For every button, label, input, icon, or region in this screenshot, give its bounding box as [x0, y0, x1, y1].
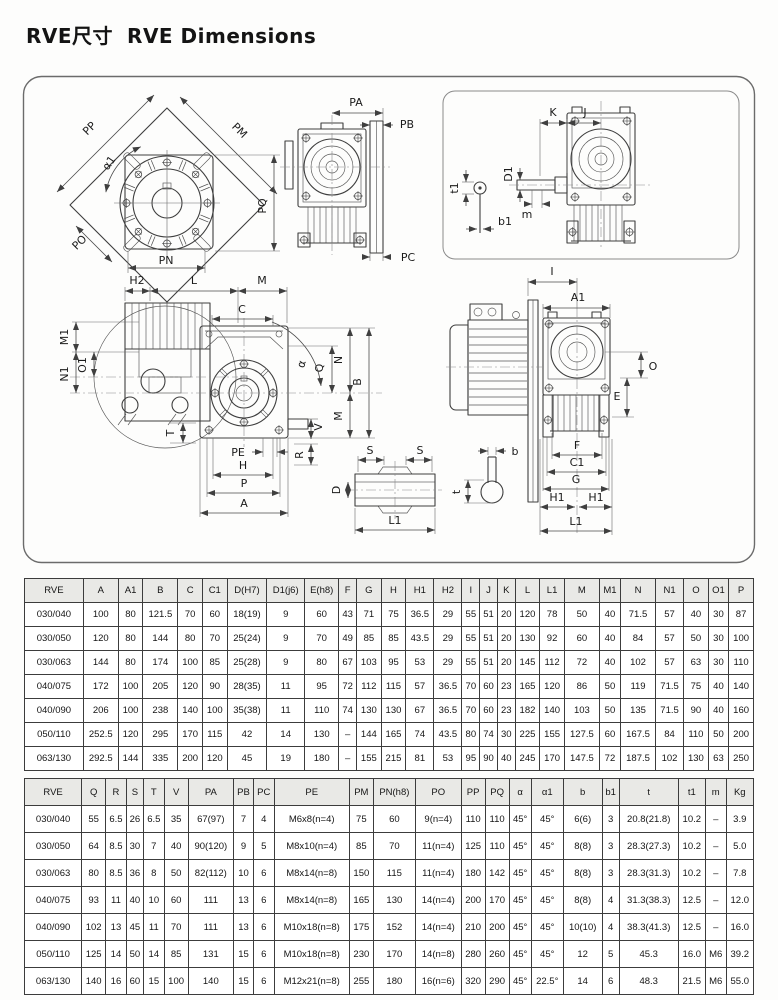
- value-cell: 57: [656, 627, 684, 651]
- dim-label-k: K: [549, 106, 557, 119]
- value-cell: 131: [188, 941, 233, 968]
- row-header-cell: 030/050: [25, 627, 84, 651]
- value-cell: 18(19): [227, 603, 267, 627]
- row-header-cell: 030/040: [25, 603, 84, 627]
- value-cell: 6: [253, 941, 274, 968]
- column-header: t1: [678, 779, 705, 806]
- value-cell: 72: [339, 675, 357, 699]
- value-cell: 36: [126, 860, 143, 887]
- value-cell: 23: [497, 675, 515, 699]
- value-cell: 260: [485, 941, 509, 968]
- value-cell: 252.5: [83, 723, 118, 747]
- value-cell: 60: [480, 675, 498, 699]
- value-cell: 7.8: [726, 860, 753, 887]
- value-cell: 26: [126, 806, 143, 833]
- value-cell: 130: [373, 887, 415, 914]
- value-cell: 12.0: [726, 887, 753, 914]
- dim-label-h1-right: H1: [588, 491, 603, 504]
- value-cell: 14(n=4): [415, 914, 461, 941]
- value-cell: 12: [563, 941, 602, 968]
- value-cell: 144: [118, 747, 143, 771]
- dim-label-b-key: b: [512, 445, 519, 458]
- column-header: m: [705, 779, 726, 806]
- value-cell: 40: [164, 833, 188, 860]
- value-cell: 25(24): [227, 627, 267, 651]
- value-cell: 147.5: [564, 747, 599, 771]
- value-cell: 40: [708, 699, 728, 723]
- value-cell: 85: [357, 627, 382, 651]
- value-cell: 172: [83, 675, 118, 699]
- value-cell: M10x18(n=8): [274, 914, 349, 941]
- column-header: PM: [349, 779, 373, 806]
- value-cell: 30: [708, 627, 728, 651]
- dim-label-h: H: [239, 459, 247, 472]
- value-cell: 110: [684, 723, 709, 747]
- value-cell: 5: [253, 833, 274, 860]
- gearbox-front-drawing: PA PB PC: [280, 96, 415, 264]
- dim-label-l: L: [191, 274, 198, 287]
- value-cell: 67: [406, 699, 434, 723]
- value-cell: M10x18(n=8): [274, 941, 349, 968]
- dim-label-l1-motor: L1: [569, 515, 582, 528]
- value-cell: 60: [164, 887, 188, 914]
- value-cell: 38.3(41.3): [619, 914, 678, 941]
- value-cell: 10: [144, 887, 165, 914]
- value-cell: 40: [497, 747, 515, 771]
- dimensions-table-1: RVEAA1BCC1D(H7)D1(j6)E(h8)FGHH1H2IJKLL1M…: [24, 578, 754, 771]
- value-cell: 35: [164, 806, 188, 833]
- value-cell: 55: [462, 603, 480, 627]
- value-cell: 230: [349, 941, 373, 968]
- value-cell: 36.5: [406, 603, 434, 627]
- value-cell: 36.5: [434, 675, 462, 699]
- column-header: P: [729, 579, 754, 603]
- value-cell: 80: [178, 627, 203, 651]
- value-cell: 53: [406, 651, 434, 675]
- value-cell: 80: [118, 627, 143, 651]
- dim-label-alpha: α: [294, 359, 308, 369]
- value-cell: 85: [349, 833, 373, 860]
- value-cell: 75: [684, 675, 709, 699]
- value-cell: 19: [267, 747, 305, 771]
- value-cell: 45°: [509, 833, 531, 860]
- value-cell: 70: [178, 603, 203, 627]
- column-header: N1: [656, 579, 684, 603]
- dim-label-alpha1: α1: [100, 153, 119, 172]
- value-cell: 140: [729, 675, 754, 699]
- value-cell: 45°: [531, 941, 563, 968]
- column-header: Kg: [726, 779, 753, 806]
- dim-label-j: J: [582, 106, 586, 119]
- value-cell: 165: [349, 887, 373, 914]
- row-header-cell: 040/090: [25, 699, 84, 723]
- value-cell: 50: [708, 723, 728, 747]
- value-cell: 15: [234, 941, 254, 968]
- value-cell: 115: [373, 860, 415, 887]
- column-header: b1: [602, 779, 619, 806]
- value-cell: 12.5: [678, 887, 705, 914]
- value-cell: 93: [82, 887, 106, 914]
- value-cell: 29: [434, 651, 462, 675]
- value-cell: 3: [602, 806, 619, 833]
- column-header: PQ: [485, 779, 509, 806]
- value-cell: 111: [188, 914, 233, 941]
- value-cell: 8: [144, 860, 165, 887]
- value-cell: 7: [144, 833, 165, 860]
- value-cell: 145: [515, 651, 540, 675]
- value-cell: 9: [234, 833, 254, 860]
- value-cell: 72: [599, 747, 620, 771]
- dim-label-q: Q: [313, 363, 326, 372]
- value-cell: 250: [729, 747, 754, 771]
- value-cell: 40: [599, 603, 620, 627]
- value-cell: 28(35): [227, 675, 267, 699]
- table-row: 030/063808.53685082(112)106M8x14(n=8)150…: [25, 860, 754, 887]
- value-cell: 9: [267, 603, 305, 627]
- value-cell: 30: [497, 723, 515, 747]
- value-cell: 200: [729, 723, 754, 747]
- value-cell: 45°: [531, 806, 563, 833]
- value-cell: 57: [656, 651, 684, 675]
- value-cell: M6x8(n=4): [274, 806, 349, 833]
- value-cell: 115: [202, 723, 227, 747]
- value-cell: 280: [461, 941, 485, 968]
- dim-label-v: V: [312, 423, 325, 431]
- shaft-section-drawing: S S L1 D b t: [330, 444, 519, 534]
- value-cell: 120: [118, 723, 143, 747]
- dim-label-pe: PE: [231, 446, 245, 459]
- value-cell: 95: [381, 651, 406, 675]
- value-cell: 200: [485, 914, 509, 941]
- value-cell: 95: [305, 675, 339, 699]
- value-cell: 100: [118, 699, 143, 723]
- column-header: M: [564, 579, 599, 603]
- value-cell: 51: [480, 627, 498, 651]
- dim-label-pp: PP: [80, 119, 99, 138]
- dim-label-m-right: M: [332, 411, 345, 421]
- row-header-cell: 040/090: [25, 914, 82, 941]
- value-cell: 71.5: [621, 603, 656, 627]
- value-cell: 8(8): [563, 833, 602, 860]
- value-cell: 23: [497, 699, 515, 723]
- dim-label-r: R: [293, 451, 306, 459]
- dim-label-po: PO: [70, 232, 90, 252]
- column-header: A1: [118, 579, 143, 603]
- value-cell: 85: [202, 651, 227, 675]
- dim-label-n1: N1: [58, 366, 71, 381]
- value-cell: 25(28): [227, 651, 267, 675]
- value-cell: 100: [729, 627, 754, 651]
- value-cell: 50: [599, 699, 620, 723]
- column-header: α1: [531, 779, 563, 806]
- value-cell: 40: [684, 603, 709, 627]
- value-cell: 155: [357, 747, 382, 771]
- dim-label-b1: b1: [498, 215, 512, 228]
- value-cell: 75: [349, 806, 373, 833]
- dim-label-m: m: [522, 208, 533, 221]
- value-cell: 8.5: [106, 860, 127, 887]
- value-cell: 15: [144, 968, 165, 995]
- value-cell: –: [705, 806, 726, 833]
- table-row: 050/11012514501485131156M10x18(n=8)23017…: [25, 941, 754, 968]
- dim-label-pc: PC: [401, 251, 416, 264]
- column-header: R: [106, 779, 127, 806]
- value-cell: 127.5: [564, 723, 599, 747]
- value-cell: 40: [599, 627, 620, 651]
- column-header: D(H7): [227, 579, 267, 603]
- value-cell: 60: [480, 699, 498, 723]
- value-cell: 74: [339, 699, 357, 723]
- value-cell: 90: [684, 699, 709, 723]
- dim-label-m1: M1: [58, 329, 71, 346]
- input-shaft-drawing: K J t1 b1 D1 m: [448, 101, 652, 247]
- value-cell: 290: [485, 968, 509, 995]
- value-cell: 112: [357, 675, 382, 699]
- value-cell: 7: [234, 806, 254, 833]
- column-header: α: [509, 779, 531, 806]
- row-header-cell: 030/063: [25, 860, 82, 887]
- dim-label-h1-left: H1: [549, 491, 564, 504]
- value-cell: 20.8(21.8): [619, 806, 678, 833]
- column-header: T: [144, 779, 165, 806]
- value-cell: 9: [267, 651, 305, 675]
- row-header-cell: 030/063: [25, 651, 84, 675]
- column-header: PA: [188, 779, 233, 806]
- column-header: PP: [461, 779, 485, 806]
- value-cell: 55: [462, 651, 480, 675]
- value-cell: 14(n=8): [415, 941, 461, 968]
- value-cell: 45°: [509, 941, 531, 968]
- value-cell: 255: [349, 968, 373, 995]
- column-header: K: [497, 579, 515, 603]
- value-cell: 45°: [531, 887, 563, 914]
- value-cell: 95: [462, 747, 480, 771]
- value-cell: 90: [480, 747, 498, 771]
- value-cell: 200: [178, 747, 203, 771]
- column-header: A: [83, 579, 118, 603]
- value-cell: 43: [339, 603, 357, 627]
- value-cell: 30: [708, 603, 728, 627]
- value-cell: 170: [178, 723, 203, 747]
- value-cell: 215: [381, 747, 406, 771]
- dim-label-g: G: [572, 473, 581, 486]
- row-header-cell: 050/110: [25, 941, 82, 968]
- value-cell: 87: [729, 603, 754, 627]
- value-cell: 6: [253, 887, 274, 914]
- dim-label-a1: A1: [571, 291, 586, 304]
- value-cell: 14: [267, 723, 305, 747]
- value-cell: 165: [515, 675, 540, 699]
- value-cell: 14(n=4): [415, 887, 461, 914]
- value-cell: 43.5: [406, 627, 434, 651]
- value-cell: 144: [143, 627, 178, 651]
- value-cell: 102: [656, 747, 684, 771]
- column-header: PN(h8): [373, 779, 415, 806]
- value-cell: 110: [305, 699, 339, 723]
- value-cell: 50: [564, 603, 599, 627]
- dim-label-o1: O1: [76, 357, 89, 373]
- page-title-en: RVE Dimensions: [127, 24, 316, 48]
- column-header: D1(j6): [267, 579, 305, 603]
- drawing-panel: PP PM α1 PQ PO PN: [22, 75, 756, 564]
- value-cell: 63: [708, 747, 728, 771]
- value-cell: 8(8): [563, 860, 602, 887]
- value-cell: 20: [497, 627, 515, 651]
- value-cell: 140: [178, 699, 203, 723]
- dim-label-m-top: M: [257, 274, 267, 287]
- dim-label-b-cap: B: [351, 378, 364, 386]
- value-cell: 180: [373, 968, 415, 995]
- dim-label-t-cap: T: [164, 429, 177, 437]
- value-cell: 15: [234, 968, 254, 995]
- table-header-row: RVEAA1BCC1D(H7)D1(j6)E(h8)FGHH1H2IJKLL1M…: [25, 579, 754, 603]
- column-header: L1: [540, 579, 565, 603]
- value-cell: 119: [621, 675, 656, 699]
- input-view-border: [443, 91, 739, 259]
- motor-assembly-drawing: I A1 O E F C1 G H1 H1 L1: [446, 265, 658, 535]
- value-cell: 80: [305, 651, 339, 675]
- value-cell: 135: [621, 699, 656, 723]
- value-cell: 8.5: [106, 833, 127, 860]
- value-cell: 60: [305, 603, 339, 627]
- value-cell: 45°: [509, 860, 531, 887]
- value-cell: 80: [118, 651, 143, 675]
- value-cell: 45°: [531, 833, 563, 860]
- value-cell: 155: [540, 723, 565, 747]
- value-cell: 85: [381, 627, 406, 651]
- dim-label-d: D: [330, 486, 343, 494]
- column-header: S: [126, 779, 143, 806]
- value-cell: 14: [144, 941, 165, 968]
- value-cell: 13: [106, 914, 127, 941]
- value-cell: 71.5: [656, 699, 684, 723]
- value-cell: 100: [118, 675, 143, 699]
- column-header: L: [515, 579, 540, 603]
- value-cell: 78: [540, 603, 565, 627]
- value-cell: –: [705, 914, 726, 941]
- value-cell: 80: [118, 603, 143, 627]
- value-cell: 16.0: [678, 941, 705, 968]
- value-cell: 210: [461, 914, 485, 941]
- value-cell: 60: [564, 627, 599, 651]
- value-cell: 57: [656, 603, 684, 627]
- value-cell: 120: [83, 627, 118, 651]
- value-cell: 10: [234, 860, 254, 887]
- value-cell: 100: [178, 651, 203, 675]
- value-cell: 170: [373, 941, 415, 968]
- value-cell: 6: [602, 968, 619, 995]
- column-header: PO: [415, 779, 461, 806]
- value-cell: 180: [305, 747, 339, 771]
- value-cell: 11(n=4): [415, 833, 461, 860]
- value-cell: 5: [602, 941, 619, 968]
- value-cell: M6: [705, 968, 726, 995]
- column-header: C1: [202, 579, 227, 603]
- value-cell: 12.5: [678, 914, 705, 941]
- column-header: B: [143, 579, 178, 603]
- column-header: O: [684, 579, 709, 603]
- value-cell: 90: [202, 675, 227, 699]
- value-cell: 167.5: [621, 723, 656, 747]
- value-cell: 110: [485, 833, 509, 860]
- value-cell: 5.0: [726, 833, 753, 860]
- value-cell: 70: [164, 914, 188, 941]
- value-cell: 11: [106, 887, 127, 914]
- value-cell: 6(6): [563, 806, 602, 833]
- rve-dimensions-table-main: RVEAA1BCC1D(H7)D1(j6)E(h8)FGHH1H2IJKLL1M…: [24, 578, 754, 771]
- value-cell: 20: [497, 603, 515, 627]
- column-header: H1: [406, 579, 434, 603]
- value-cell: M12x21(n=8): [274, 968, 349, 995]
- value-cell: 14: [106, 941, 127, 968]
- dimensions-table-2: RVEQRSTVPAPBPCPEPMPN(h8)POPPPQαα1bb1tt1m…: [24, 778, 754, 995]
- value-cell: 50: [684, 627, 709, 651]
- value-cell: 182: [515, 699, 540, 723]
- page-title-zh: RVE尺寸: [26, 24, 113, 48]
- value-cell: 100: [164, 968, 188, 995]
- value-cell: 130: [357, 699, 382, 723]
- value-cell: 48.3: [619, 968, 678, 995]
- catalog-page: { "page": { "title_zh": "RVE尺寸", "title_…: [0, 0, 778, 1000]
- column-header: RVE: [25, 579, 84, 603]
- value-cell: 80: [82, 860, 106, 887]
- column-header: J: [480, 579, 498, 603]
- value-cell: 170: [485, 887, 509, 914]
- value-cell: 144: [357, 723, 382, 747]
- value-cell: 200: [461, 887, 485, 914]
- column-header: H2: [434, 579, 462, 603]
- value-cell: 11: [144, 914, 165, 941]
- row-header-cell: 063/130: [25, 747, 84, 771]
- table-row: 030/05012080144807025(24)97049858543.529…: [25, 627, 754, 651]
- value-cell: 16.0: [726, 914, 753, 941]
- value-cell: 67: [339, 651, 357, 675]
- value-cell: 3.9: [726, 806, 753, 833]
- value-cell: 170: [540, 747, 565, 771]
- value-cell: 6: [253, 860, 274, 887]
- value-cell: 70: [373, 833, 415, 860]
- rve-dimensions-table-secondary: RVEQRSTVPAPBPCPEPMPN(h8)POPPPQαα1bb1tt1m…: [24, 778, 754, 995]
- value-cell: 205: [143, 675, 178, 699]
- value-cell: 29: [434, 627, 462, 651]
- column-header: t: [619, 779, 678, 806]
- value-cell: 81: [406, 747, 434, 771]
- value-cell: 130: [684, 747, 709, 771]
- column-header: PB: [234, 779, 254, 806]
- value-cell: 70: [202, 627, 227, 651]
- value-cell: 63: [684, 651, 709, 675]
- value-cell: 75: [381, 603, 406, 627]
- dim-label-h2: H2: [129, 274, 144, 287]
- table-row: 040/09020610023814010035(38)111107413013…: [25, 699, 754, 723]
- value-cell: 14: [563, 968, 602, 995]
- value-cell: 174: [143, 651, 178, 675]
- value-cell: 39.2: [726, 941, 753, 968]
- value-cell: 51: [480, 603, 498, 627]
- value-cell: 40: [126, 887, 143, 914]
- value-cell: 10.2: [678, 806, 705, 833]
- value-cell: 43.5: [434, 723, 462, 747]
- dim-label-pn: PN: [159, 254, 174, 267]
- value-cell: 45°: [509, 887, 531, 914]
- column-header: RVE: [25, 779, 82, 806]
- side-assembly-drawing: M1 O1 N1 H2 L M C Q N B M V R α: [58, 274, 382, 517]
- value-cell: 225: [515, 723, 540, 747]
- value-cell: 3: [602, 833, 619, 860]
- value-cell: –: [705, 887, 726, 914]
- dim-label-n: N: [332, 356, 345, 364]
- table-row: 030/04010080121.5706018(19)96043717536.5…: [25, 603, 754, 627]
